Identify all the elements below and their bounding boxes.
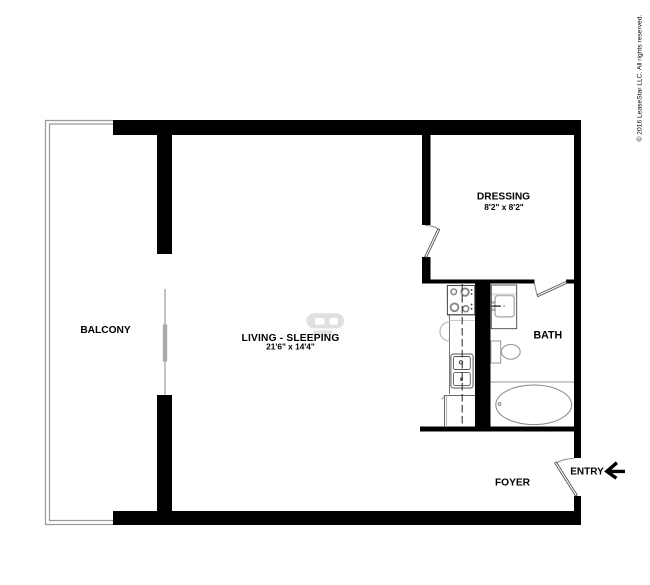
svg-text:21'6" x 14'4": 21'6" x 14'4" bbox=[266, 342, 315, 352]
svg-text:© 2016 LeaseStar LLC. All righ: © 2016 LeaseStar LLC. All rights reserve… bbox=[636, 15, 644, 142]
svg-text:DRESSING: DRESSING bbox=[477, 192, 530, 203]
svg-text:FOYER: FOYER bbox=[495, 478, 531, 489]
svg-text:BALCONY: BALCONY bbox=[80, 325, 131, 336]
svg-text:ENTRY: ENTRY bbox=[570, 467, 604, 478]
svg-text:BATH: BATH bbox=[533, 330, 562, 342]
svg-text:8'2" x 8'2": 8'2" x 8'2" bbox=[484, 202, 524, 212]
